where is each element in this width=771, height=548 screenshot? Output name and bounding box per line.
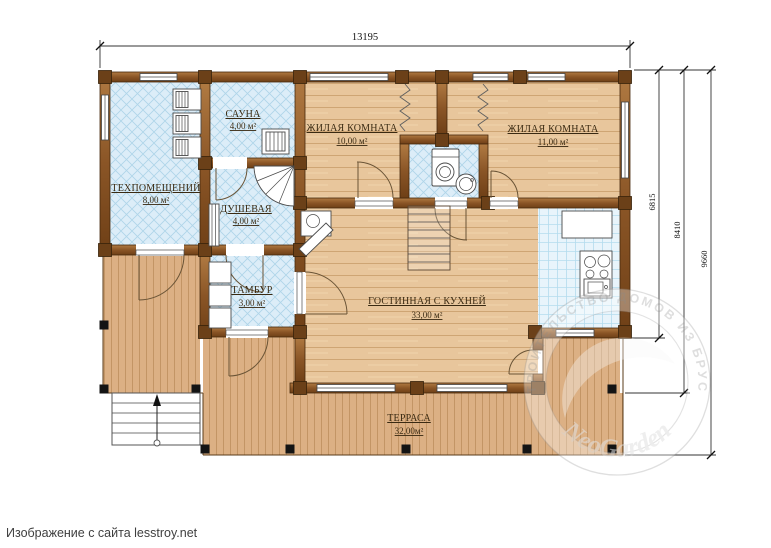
dimension-right-1: 6815	[647, 194, 657, 211]
entry-steps	[112, 393, 200, 446]
sauna-heater	[262, 129, 289, 154]
room-living-area: 33,00 м²	[412, 310, 443, 320]
window	[310, 74, 388, 81]
room-living-label: ГОСТИННАЯ С КУХНЕЙ	[368, 295, 486, 307]
room-tambour-label: ТАМБУР	[232, 285, 273, 296]
window	[473, 74, 508, 81]
boiler-shelves	[173, 89, 201, 158]
kitchen-counter	[562, 211, 612, 238]
room-terrace-label: ТЕРРАСА	[387, 413, 431, 424]
terrace-under-tambour-floor	[203, 337, 295, 393]
room-sauna-area: 4,00 м²	[230, 121, 257, 131]
room-tech-area: 8,00 м²	[143, 195, 170, 205]
tambour-closet	[209, 262, 231, 328]
window	[140, 74, 177, 81]
room-bedroom2-area: 11,00 м²	[538, 137, 569, 147]
room-tambour-area: 3,00 м²	[239, 298, 266, 308]
bathroom-sink	[456, 174, 476, 194]
room-shower-area: 4,00 м²	[233, 216, 260, 226]
dimension-width-value: 13195	[352, 32, 378, 43]
room-bedroom2-label: ЖИЛАЯ КОМНАТА	[508, 124, 599, 135]
dimension-right-2: 8410	[672, 222, 682, 239]
room-shower-label: ДУШЕВАЯ	[220, 204, 272, 215]
window	[622, 102, 629, 178]
room-tech-label: ТЕХПОМЕЩЕНИЙ	[111, 182, 200, 194]
stairs	[408, 206, 450, 270]
room-bedroom1-area: 10,00 м²	[337, 136, 368, 146]
washing-machine	[432, 149, 459, 186]
room-sauna-label: САУНА	[225, 109, 261, 120]
caption-source-text: Изображение с сайта lesstroy.net	[6, 526, 198, 540]
room-terrace-area: 32,00м²	[395, 426, 424, 436]
window	[437, 385, 507, 392]
window	[317, 385, 395, 392]
dimension-right-3: 9660	[699, 251, 709, 268]
window	[102, 95, 109, 140]
floor-plan-drawing: ТЕХПОМЕЩЕНИЙ 8,00 м² САУНА 4,00 м² ДУШЕВ…	[0, 0, 771, 548]
terrace-left-floor	[103, 255, 200, 393]
room-bedroom1-label: ЖИЛАЯ КОМНАТА	[307, 123, 398, 134]
floor-plan-page: ТЕХПОМЕЩЕНИЙ 8,00 м² САУНА 4,00 м² ДУШЕВ…	[0, 0, 771, 548]
window	[528, 74, 565, 81]
shower-bench	[209, 204, 219, 246]
dimension-top: 13195	[96, 32, 634, 68]
